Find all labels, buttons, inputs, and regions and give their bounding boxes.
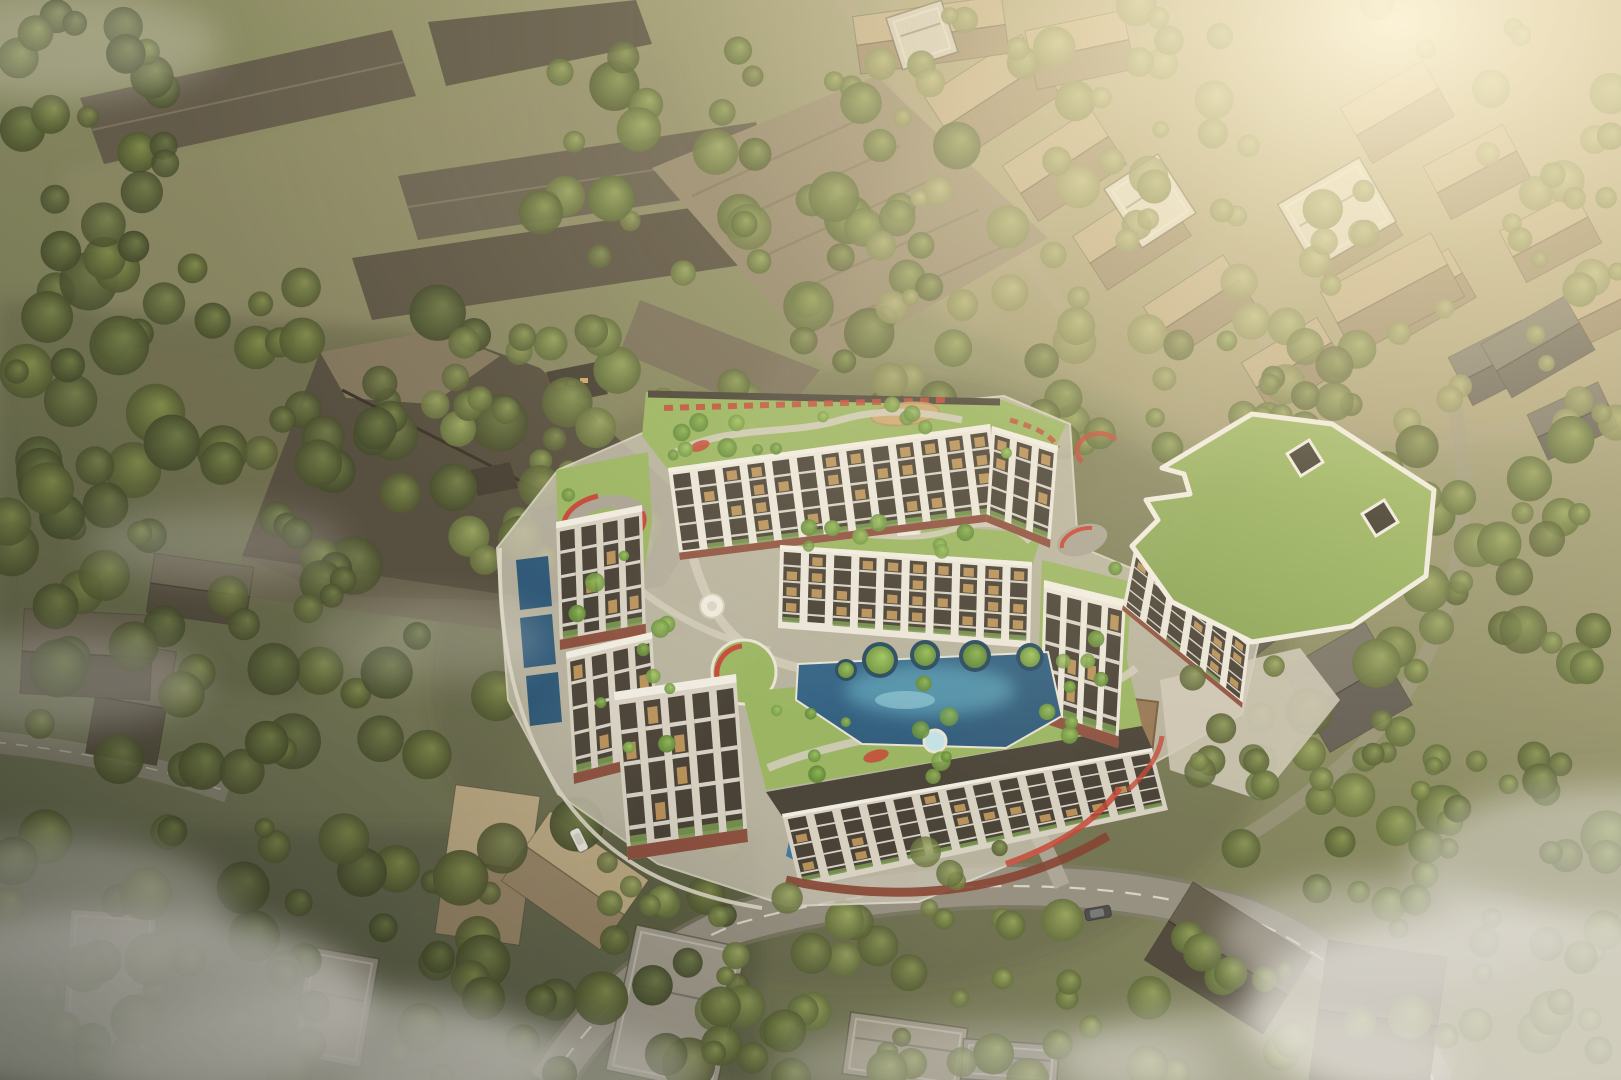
lighting-overlays	[0, 0, 1621, 1080]
aerial-render	[0, 0, 1621, 1080]
shadow-vignette	[0, 0, 1621, 1080]
scene-canvas	[0, 0, 1621, 1080]
